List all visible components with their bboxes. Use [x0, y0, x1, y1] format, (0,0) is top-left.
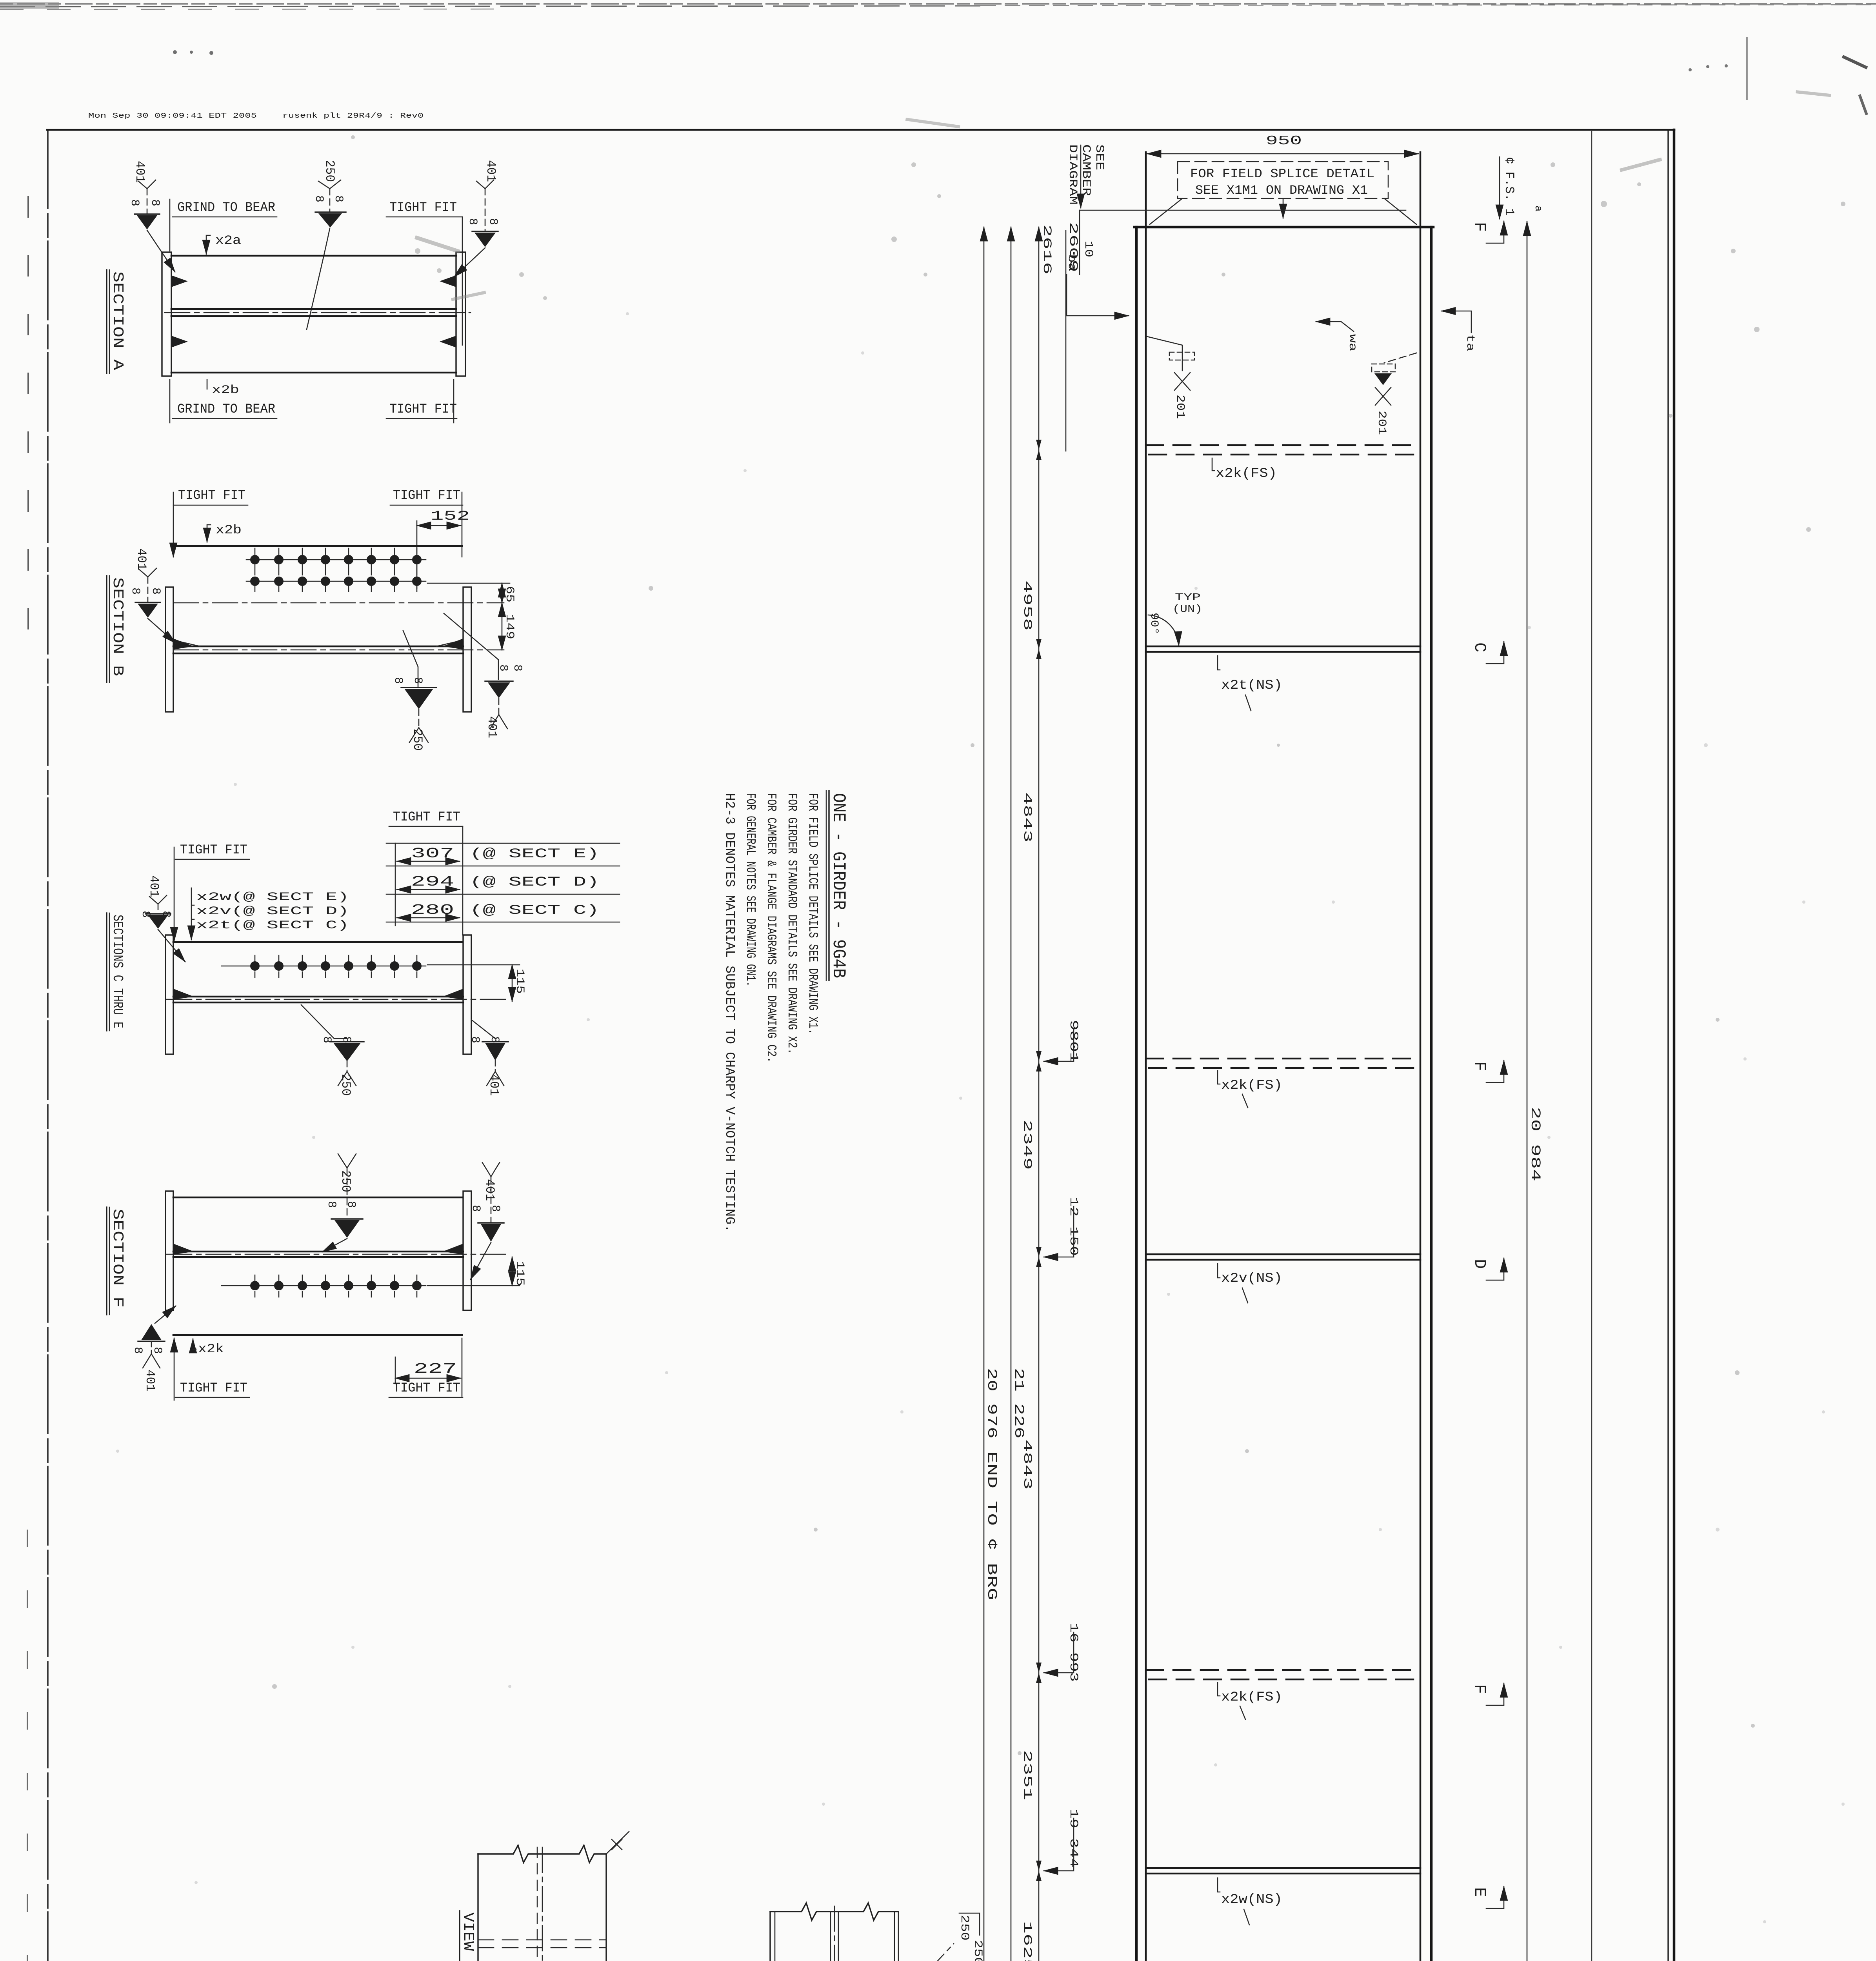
svg-text:8: 8 [128, 199, 141, 206]
svg-text:8: 8 [148, 199, 162, 206]
svg-text:FOR GIRDER STANDARD DETAILS SE: FOR GIRDER STANDARD DETAILS SEE DRAWING … [785, 793, 799, 1054]
svg-text:20 976: 20 976 [984, 1368, 999, 1439]
svg-text:DIAGRAM: DIAGRAM [1066, 144, 1079, 205]
svg-text:x2v(@ SECT D): x2v(@ SECT D) [196, 905, 349, 918]
svg-text:294: 294 [411, 874, 454, 890]
svg-text:ba: ba [1065, 254, 1078, 271]
svg-text:(@ SECT C): (@ SECT C) [470, 903, 599, 918]
svg-text:2616: 2616 [1040, 224, 1053, 275]
svg-text:307: 307 [411, 846, 454, 862]
svg-text:401: 401 [147, 875, 161, 897]
svg-text:8: 8 [511, 664, 524, 671]
svg-text:4958: 4958 [1020, 580, 1034, 631]
svg-text:8: 8 [149, 588, 162, 595]
svg-text:950: 950 [1266, 134, 1302, 148]
svg-text:8: 8 [468, 1036, 482, 1043]
svg-text:C: C [1470, 642, 1489, 652]
svg-text:250: 250 [322, 160, 337, 182]
svg-text:20 984: 20 984 [1527, 1107, 1542, 1181]
svg-text:115: 115 [513, 969, 526, 994]
svg-text:TIGHT FIT: TIGHT FIT [389, 200, 457, 215]
svg-text:TIGHT FIT: TIGHT FIT [180, 843, 247, 858]
svg-text:10: 10 [1082, 241, 1095, 257]
svg-text:401: 401 [482, 1179, 497, 1201]
svg-text:250: 250 [958, 1915, 971, 1941]
svg-text:8: 8 [486, 218, 500, 225]
svg-text:FOR CAMBER & FLANGE DIAGRAMS S: FOR CAMBER & FLANGE DIAGRAMS SEE DRAWING… [764, 793, 778, 1063]
svg-text:ta: ta [1464, 334, 1476, 351]
svg-text:2349: 2349 [1020, 1120, 1034, 1170]
svg-text:8: 8 [312, 195, 325, 202]
svg-text:4843: 4843 [1020, 792, 1034, 842]
svg-text:227: 227 [414, 1361, 457, 1377]
svg-text:x2b: x2b [216, 523, 242, 537]
svg-text:4843: 4843 [1020, 1439, 1034, 1490]
svg-text:8: 8 [466, 218, 479, 225]
svg-text:(@ SECT E): (@ SECT E) [470, 847, 599, 862]
svg-text:SECTIONS C THRU E: SECTIONS C THRU E [109, 915, 125, 1028]
svg-text:21 226: 21 226 [1011, 1368, 1026, 1439]
svg-text:F: F [1470, 1684, 1489, 1694]
svg-text:250: 250 [410, 729, 425, 751]
svg-text:a: a [1532, 206, 1544, 212]
svg-text:250: 250 [338, 1074, 353, 1096]
svg-text:8: 8 [391, 677, 405, 684]
svg-text:8: 8 [411, 677, 424, 684]
svg-text:x2t(NS): x2t(NS) [1221, 678, 1282, 693]
svg-text:x2w(NS): x2w(NS) [1221, 1892, 1282, 1907]
svg-text:280: 280 [411, 902, 454, 918]
svg-text:8: 8 [496, 664, 510, 671]
svg-text:TIGHT FIT: TIGHT FIT [178, 488, 245, 503]
svg-text:8: 8 [332, 195, 345, 202]
svg-text:2351: 2351 [1020, 1750, 1034, 1800]
svg-text:VIEW TA: VIEW TA [460, 1912, 476, 1961]
svg-text:x2k(FS): x2k(FS) [1221, 1078, 1282, 1093]
svg-text:401: 401 [134, 548, 149, 570]
svg-text:D: D [1470, 1259, 1489, 1269]
svg-text:401: 401 [487, 1074, 501, 1096]
svg-text:SECTION B: SECTION B [109, 577, 126, 676]
svg-text:H2-3 DENOTES MATERIAL SUBJECT: H2-3 DENOTES MATERIAL SUBJECT TO CHARPY … [722, 793, 737, 1232]
svg-text:FOR FIELD SPLICE DETAIL: FOR FIELD SPLICE DETAIL [1190, 167, 1374, 181]
svg-text:(@ SECT D): (@ SECT D) [470, 875, 599, 890]
svg-text:1625: 1625 [1020, 1921, 1034, 1961]
svg-text:x2v(NS): x2v(NS) [1221, 1271, 1282, 1286]
svg-text:x2w(@ SECT E): x2w(@ SECT E) [196, 891, 349, 904]
svg-text:GRIND TO BEAR: GRIND TO BEAR [177, 402, 275, 417]
svg-text:wa: wa [1346, 334, 1358, 351]
svg-text:SECTION F: SECTION F [109, 1209, 126, 1308]
svg-text:x2k(FS): x2k(FS) [1221, 1690, 1282, 1705]
svg-text:END TO ¢ BRG: END TO ¢ BRG [984, 1451, 999, 1600]
svg-text:SEE: SEE [1093, 144, 1106, 170]
svg-text:115: 115 [513, 1261, 526, 1286]
svg-text:8: 8 [129, 588, 142, 595]
svg-text:8: 8 [325, 1201, 338, 1208]
svg-text:F: F [1470, 222, 1489, 232]
svg-text:401: 401 [484, 160, 498, 182]
svg-text:E: E [1470, 1887, 1489, 1897]
svg-text:8: 8 [131, 1347, 144, 1354]
svg-text:TIGHT FIT: TIGHT FIT [393, 1381, 460, 1396]
svg-text:401: 401 [133, 161, 147, 183]
svg-text:8: 8 [344, 1201, 358, 1208]
svg-text:F: F [1470, 1061, 1489, 1071]
svg-text:FOR GENERAL NOTES SEE DRAWING: FOR GENERAL NOTES SEE DRAWING GN1. [743, 793, 758, 987]
svg-text:TIGHT FIT: TIGHT FIT [393, 810, 460, 825]
svg-text:x2b: x2b [212, 384, 239, 397]
svg-text:SEE X1M1 ON DRAWING X1: SEE X1M1 ON DRAWING X1 [1195, 183, 1368, 198]
svg-text:¢ F.S. 1: ¢ F.S. 1 [1502, 157, 1516, 216]
svg-text:x2k: x2k [198, 1342, 224, 1356]
svg-text:201: 201 [1375, 411, 1388, 435]
svg-text:x2t(@ SECT C): x2t(@ SECT C) [196, 919, 349, 932]
svg-text:TIGHT FIT: TIGHT FIT [389, 402, 457, 417]
svg-text:(UN): (UN) [1172, 603, 1202, 615]
svg-text:Mon Sep 30 09:09:41 EDT 2005: Mon Sep 30 09:09:41 EDT 2005 [88, 112, 257, 120]
svg-text:152: 152 [431, 509, 470, 524]
svg-text:SECTION A: SECTION A [109, 271, 126, 370]
svg-text:TIGHT FIT: TIGHT FIT [393, 488, 460, 503]
svg-text:rusenk plt 29R4/9 : Rev0: rusenk plt 29R4/9 : Rev0 [282, 112, 424, 120]
svg-text:149: 149 [503, 614, 516, 639]
svg-text:250: 250 [971, 1940, 984, 1961]
svg-text:401: 401 [485, 716, 499, 738]
svg-text:TYP: TYP [1175, 591, 1201, 603]
svg-text:FOR FIELD SPLICE DETAILS SEE D: FOR FIELD SPLICE DETAILS SEE DRAWING X1. [805, 793, 820, 1035]
svg-text:250: 250 [338, 1170, 353, 1192]
svg-text:8: 8 [151, 1347, 164, 1354]
svg-text:x2a: x2a [215, 233, 241, 248]
svg-text:GRIND TO BEAR: GRIND TO BEAR [177, 200, 275, 215]
svg-text:201: 201 [1173, 395, 1187, 419]
svg-text:TIGHT FIT: TIGHT FIT [180, 1381, 247, 1396]
svg-text:8: 8 [489, 1205, 502, 1212]
svg-text:ONE - GIRDER - 9G4B: ONE - GIRDER - 9G4B [828, 793, 849, 978]
svg-text:65: 65 [503, 586, 516, 602]
svg-text:x2k(FS): x2k(FS) [1216, 466, 1277, 481]
svg-text:401: 401 [143, 1370, 157, 1392]
